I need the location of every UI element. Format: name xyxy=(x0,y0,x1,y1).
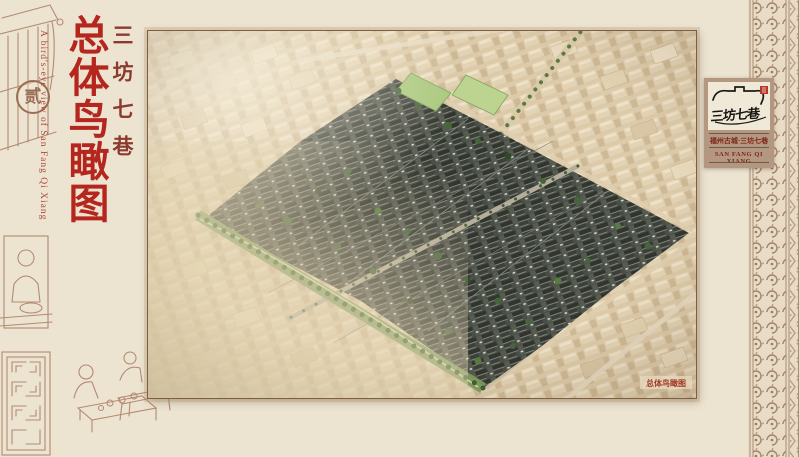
border-ornament-icon xyxy=(748,0,800,457)
brand-logo-panel: 三坊七巷 xyxy=(708,82,770,130)
aerial-rendering: 总体鸟瞰图 xyxy=(147,30,697,399)
card-divider xyxy=(709,162,769,163)
card-divider xyxy=(709,147,769,148)
brand-card: 三坊七巷 福州古城·三坊七巷 SAN FANG QI XIANG xyxy=(704,78,774,168)
series-title: 三坊七巷 xyxy=(107,24,137,194)
presentation-board: 贰 A bird's-eye view of San Fang Qi Xiang… xyxy=(0,0,800,457)
image-caption-text: 总体鸟瞰图 xyxy=(646,378,686,388)
page-title: 总体鸟瞰图 xyxy=(55,14,115,234)
english-subtitle: A bird's-eye view of San Fang Qi Xiang xyxy=(38,30,48,230)
card-divider xyxy=(709,133,769,134)
aerial-rendering-canvas: 总体鸟瞰图 xyxy=(148,31,696,398)
brand-location-line: 福州古城·三坊七巷 xyxy=(704,136,774,146)
image-caption: 总体鸟瞰图 xyxy=(640,376,692,389)
